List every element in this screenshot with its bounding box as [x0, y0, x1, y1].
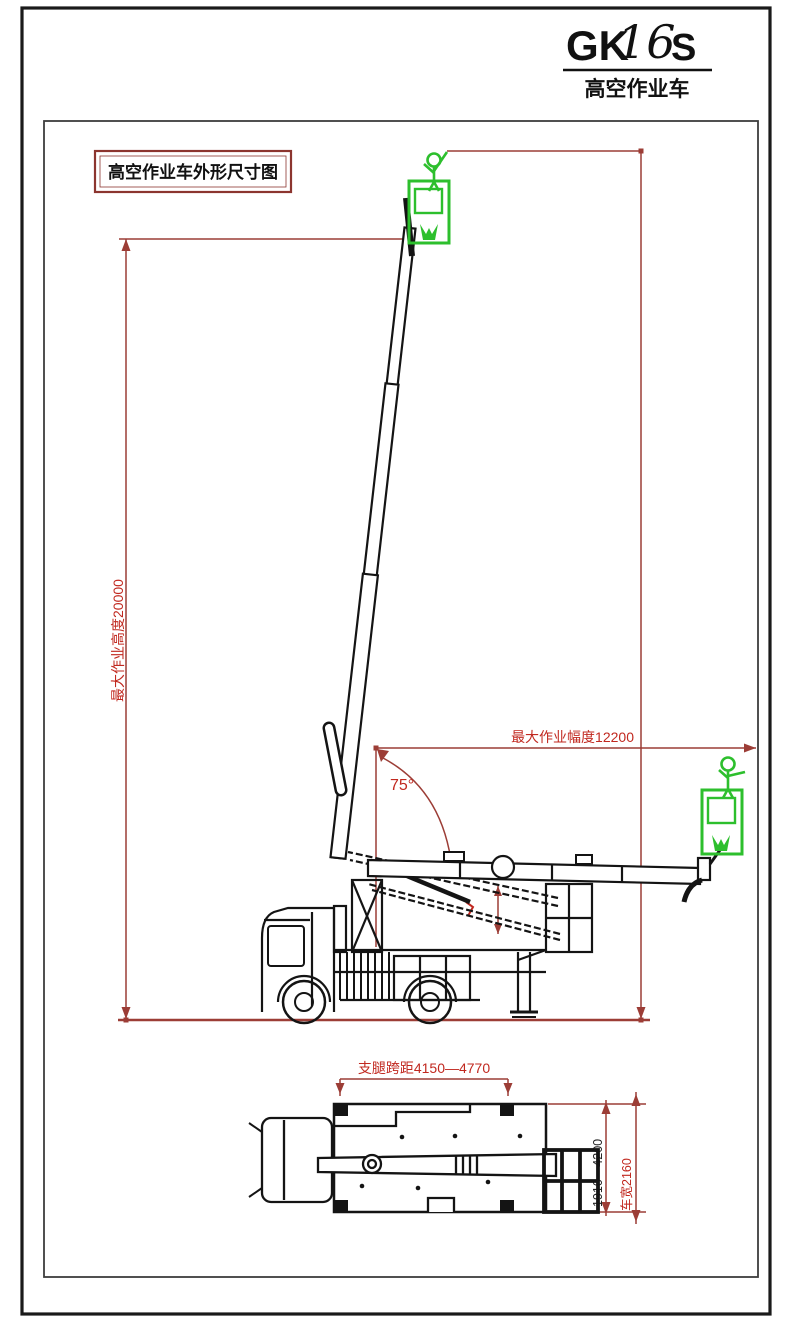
- title-block: GK 16 S 高空作业车: [563, 15, 712, 101]
- dim-max-working-radius: 最大作业幅度12200: [511, 729, 634, 745]
- dim-vehicle-width: 车宽2160: [619, 1158, 634, 1211]
- truck-plan-view: [249, 1104, 598, 1212]
- caption-text: 高空作业车外形尺寸图: [108, 162, 278, 182]
- rear-outrigger: [510, 950, 546, 1017]
- dim-max-working-height: 最大作业高度20000: [110, 579, 126, 702]
- angle-arc: [383, 758, 452, 868]
- telescopic-boom: [331, 227, 416, 858]
- rear-wheel: [409, 981, 451, 1023]
- model-suffix: S: [671, 27, 696, 69]
- deck-hatch: [340, 952, 389, 1000]
- caption-box: 高空作业车外形尺寸图: [95, 151, 291, 192]
- basket-logo: [712, 835, 730, 851]
- drawing-page: GK 16 S 高空作业车 高空作业车外形尺寸图: [0, 0, 800, 1324]
- plan-boom: [318, 1154, 556, 1176]
- cad-drawing: GK 16 S 高空作业车 高空作业车外形尺寸图: [0, 0, 800, 1324]
- right-basket: [702, 790, 742, 854]
- truck-side-view: [262, 198, 720, 1023]
- top-operator-figure: [424, 152, 447, 191]
- dim-boom-angle: 75°: [390, 777, 414, 794]
- title-subtitle: 高空作业车: [585, 77, 690, 101]
- model-digits: 16: [617, 15, 676, 69]
- front-wheel: [283, 981, 325, 1023]
- dim-outrigger-span: 支腿跨距4150—4770: [358, 1060, 491, 1076]
- basket-logo: [420, 224, 438, 240]
- dimension-labels: 最大作业高度20000 最大作业幅度12200 75° 支腿跨距4150—477…: [110, 579, 634, 1211]
